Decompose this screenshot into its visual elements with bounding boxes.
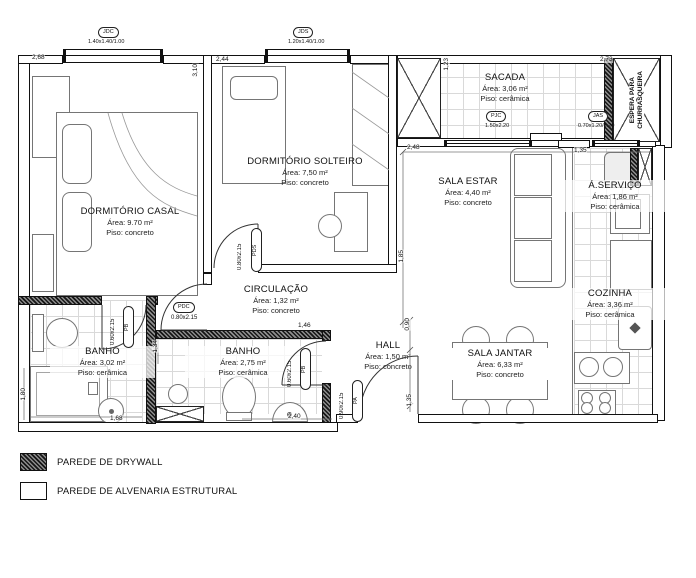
casal-pillow-1 [62, 124, 92, 184]
room-label-hall: HALL Área: 1,50 m² Piso: concreto [336, 340, 440, 372]
solteiro-desk-chair [318, 214, 342, 238]
room-area: Área: 9.70 m² [70, 218, 190, 228]
window-jds-glyph [265, 49, 350, 63]
opening-tag-pb1: PB [123, 306, 134, 348]
room-floor: Piso: concreto [70, 228, 190, 238]
opening-size-jdc: 1.40x1.40/1.00 [88, 39, 124, 45]
sacada-glazing-left [444, 140, 532, 147]
room-label-area-servico: Á.SERVIÇO Área: 1,86 m² Piso: cerâmica [560, 180, 670, 212]
floor-plan: ESPERA PARA CHURRASQUEIRA [0, 0, 696, 578]
room-label-banho-1: BANHO Área: 3,02 m² Piso: cerâmica [50, 346, 155, 378]
banho1-sink-drain [109, 409, 114, 414]
opening-tag-jds: JDS [293, 27, 313, 38]
wall-casal-right [203, 55, 212, 273]
wall-left-outer [18, 55, 30, 431]
room-label-dormitorio-casal: DORMITÓRIO CASAL Área: 9.70 m² Piso: con… [70, 206, 190, 238]
room-floor: Piso: concreto [408, 198, 528, 208]
room-name: DORMITÓRIO CASAL [70, 206, 190, 218]
room-area: Área: 7,50 m² [245, 168, 365, 178]
dim-solteiro-width: 2,44 [216, 56, 229, 63]
room-floor: Piso: cerâmica [50, 368, 155, 378]
dim-banho1-side: 1,34 [152, 340, 159, 353]
dim-estar-height: 1,85 [398, 250, 405, 263]
room-label-sala-estar: SALA ESTAR Área: 4,40 m² Piso: concreto [408, 176, 528, 208]
drywall-banho2-right-a [322, 330, 331, 341]
burner-4 [599, 402, 611, 414]
dim-banho1-width: 1,68 [110, 415, 123, 422]
room-label-circulacao: CIRCULAÇÃO Área: 1,32 m² Piso: concreto [216, 284, 336, 316]
toilet1-tank [32, 314, 44, 352]
dim-banho2-width: 2,40 [288, 413, 301, 420]
opening-size-jds: 1.20x1.40/1.00 [288, 39, 324, 45]
refrigerator [610, 240, 652, 290]
sink-bowl-2 [603, 357, 623, 377]
shower-head [88, 382, 98, 395]
room-name: HALL [336, 340, 440, 352]
opening-tag-pdc: PDC [173, 302, 195, 313]
room-name: BANHO [185, 346, 301, 358]
opening-size-jas: 0.70x1.20/1.20 [578, 123, 614, 129]
room-label-cozinha: COZINHA Área: 3,36 m² Piso: cerâmica [555, 288, 665, 320]
room-area: Área: 2,75 m² [185, 358, 301, 368]
room-floor: Piso: cerâmica [185, 368, 301, 378]
banho2-pedestal [168, 384, 188, 404]
wall-bottom-left [18, 422, 338, 432]
window-jas-glyph [592, 140, 640, 147]
wall-right-upper [660, 55, 672, 148]
casal-cabinet [32, 234, 54, 292]
wall-top-b [163, 55, 265, 64]
churrasqueira-line1: ESPERA PARA [629, 76, 636, 124]
legend-label-drywall: PAREDE DE DRYWALL [57, 457, 163, 468]
room-name: BANHO [50, 346, 155, 358]
sofa-cushion-3 [514, 240, 552, 282]
room-label-sacada: SACADA Área: 3,06 m² Piso: cerâmica [445, 72, 565, 104]
dim-casal-width: 2,68 [32, 54, 45, 61]
room-label-dormitorio-solteiro: DORMITÓRIO SOLTEIRO Área: 7,50 m² Piso: … [245, 156, 365, 188]
room-name: Á.SERVIÇO [560, 180, 670, 192]
opening-tag-jas: JAS [588, 111, 608, 122]
room-area: Área: 3,02 m² [50, 358, 155, 368]
solteiro-pillow [230, 76, 278, 100]
opening-size-pb2: 0.60x2.15 [287, 343, 293, 387]
window-jdc-glyph [63, 49, 163, 63]
toilet2-tank [226, 412, 252, 421]
dim-banho1-height: 1,80 [20, 388, 27, 401]
legend-label-alvenaria: PAREDE DE ALVENARIA ESTRUTURAL [57, 486, 237, 497]
room-floor: Piso: concreto [216, 306, 336, 316]
shaft-box-left [397, 58, 441, 138]
room-area: Área: 3,36 m² [555, 300, 665, 310]
churrasqueira-annotation: ESPERA PARA CHURRASQUEIRA [613, 58, 660, 142]
room-name: SALA JANTAR [440, 348, 560, 360]
dim-servico-width: 1,35 [574, 147, 587, 154]
dim-circulacao-width: 1,46 [298, 322, 311, 329]
dim-casal-height: 3,10 [192, 64, 199, 77]
opening-size-pjc: 1.50x2.20 [485, 123, 509, 129]
churrasqueira-line2: CHURRASQUEIRA [637, 70, 644, 130]
room-area: Área: 1,32 m² [216, 296, 336, 306]
opening-tag-pa: PA [352, 380, 363, 422]
room-label-banho-2: BANHO Área: 2,75 m² Piso: cerâmica [185, 346, 301, 378]
opening-tag-jdc: JDC [98, 27, 119, 38]
sink-bowl-1 [579, 357, 599, 377]
opening-size-pdc: 0.80x2.15 [171, 315, 197, 321]
room-name: SACADA [445, 72, 565, 84]
burner-3 [581, 402, 593, 414]
wall-solteiro-right [388, 55, 397, 273]
opening-size-pa: 0.90x2.15 [339, 375, 345, 419]
opening-size-pds: 0.80x2.15 [237, 222, 243, 270]
opening-tag-pb2: PB [300, 348, 311, 390]
room-label-sala-jantar: SALA JANTAR Área: 6,33 m² Piso: concreto [440, 348, 560, 380]
room-name: DORMITÓRIO SOLTEIRO [245, 156, 365, 168]
dim-sacada-width: 2,73 [600, 56, 613, 63]
room-name: CIRCULAÇÃO [216, 284, 336, 296]
legend-swatch-drywall [20, 453, 47, 471]
legend-swatch-alvenaria [20, 482, 47, 500]
dim-estar-width: 2,48 [407, 144, 420, 151]
room-area: Área: 6,33 m² [440, 360, 560, 370]
room-area: Área: 4,40 m² [408, 188, 528, 198]
room-floor: Piso: concreto [336, 362, 440, 372]
drywall-banho2-right-b [322, 383, 331, 423]
room-area: Área: 3,06 m² [445, 84, 565, 94]
drywall-casal-bottom-a [18, 296, 102, 305]
opening-size-pb1: 0.60x2.15 [110, 301, 116, 345]
opening-tag-pjc: PJC [486, 111, 506, 122]
room-area: Área: 1,86 m² [560, 192, 670, 202]
dim-hall-top: 0,90 [404, 318, 411, 331]
wall-bottom-right-b [418, 414, 658, 423]
room-name: COZINHA [555, 288, 665, 300]
room-floor: Piso: concreto [245, 178, 365, 188]
drywall-churrasqueira-strip [604, 58, 613, 142]
wall-solteiro-bottom [258, 264, 397, 273]
room-floor: Piso: concreto [440, 370, 560, 380]
room-floor: Piso: cerâmica [445, 94, 565, 104]
shaft-box-banhos [156, 406, 204, 422]
room-floor: Piso: cerâmica [555, 310, 665, 320]
toilet1-bowl [46, 318, 78, 348]
room-name: SALA ESTAR [408, 176, 528, 188]
wall-circulacao-stub [203, 273, 212, 285]
drywall-banho2-top [156, 330, 330, 339]
room-area: Área: 1,50 m² [336, 352, 440, 362]
dim-hall-bottom: 1,35 [406, 394, 413, 407]
dim-shaft-height: 1,23 [443, 58, 450, 71]
room-floor: Piso: cerâmica [560, 202, 670, 212]
opening-tag-pds: PDS [251, 228, 262, 272]
